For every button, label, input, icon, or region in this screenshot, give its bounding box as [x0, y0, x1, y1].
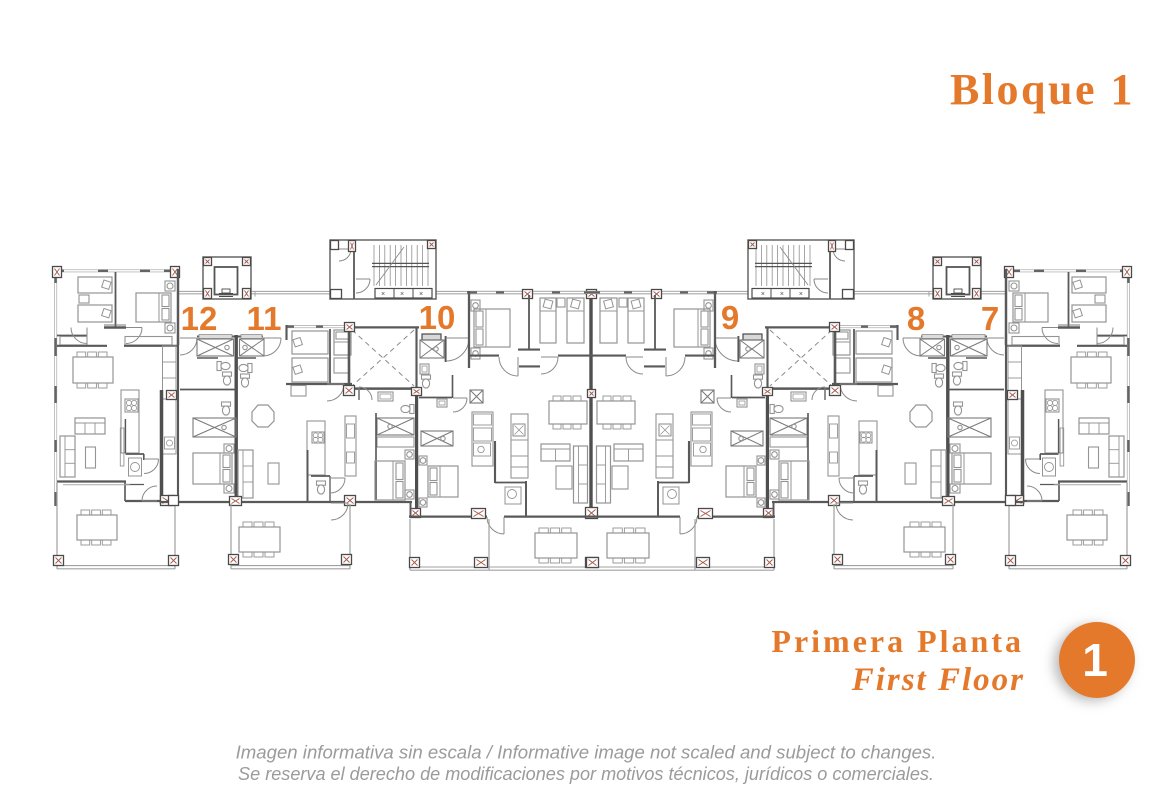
- svg-text:Primera Planta: Primera Planta: [771, 623, 1024, 659]
- svg-text:Se reserva el derecho de modif: Se reserva el derecho de modificaciones …: [238, 764, 934, 784]
- svg-text:Bloque 1: Bloque 1: [950, 65, 1135, 114]
- svg-text:×: ×: [419, 291, 423, 299]
- svg-text:×: ×: [799, 291, 803, 299]
- svg-text:10: 10: [419, 299, 456, 336]
- svg-text:Imagen informativa sin escala: Imagen informativa sin escala / Informat…: [236, 742, 937, 763]
- svg-text:7: 7: [981, 300, 999, 337]
- svg-text:1: 1: [1082, 634, 1108, 686]
- svg-text:×: ×: [381, 291, 385, 299]
- svg-text:12: 12: [181, 300, 218, 337]
- svg-text:×: ×: [780, 291, 784, 299]
- svg-text:×: ×: [400, 291, 404, 299]
- svg-text:11: 11: [247, 300, 282, 337]
- svg-text:First Floor: First Floor: [851, 662, 1025, 698]
- svg-text:9: 9: [721, 299, 739, 336]
- svg-text:8: 8: [907, 300, 925, 337]
- svg-text:×: ×: [761, 291, 765, 299]
